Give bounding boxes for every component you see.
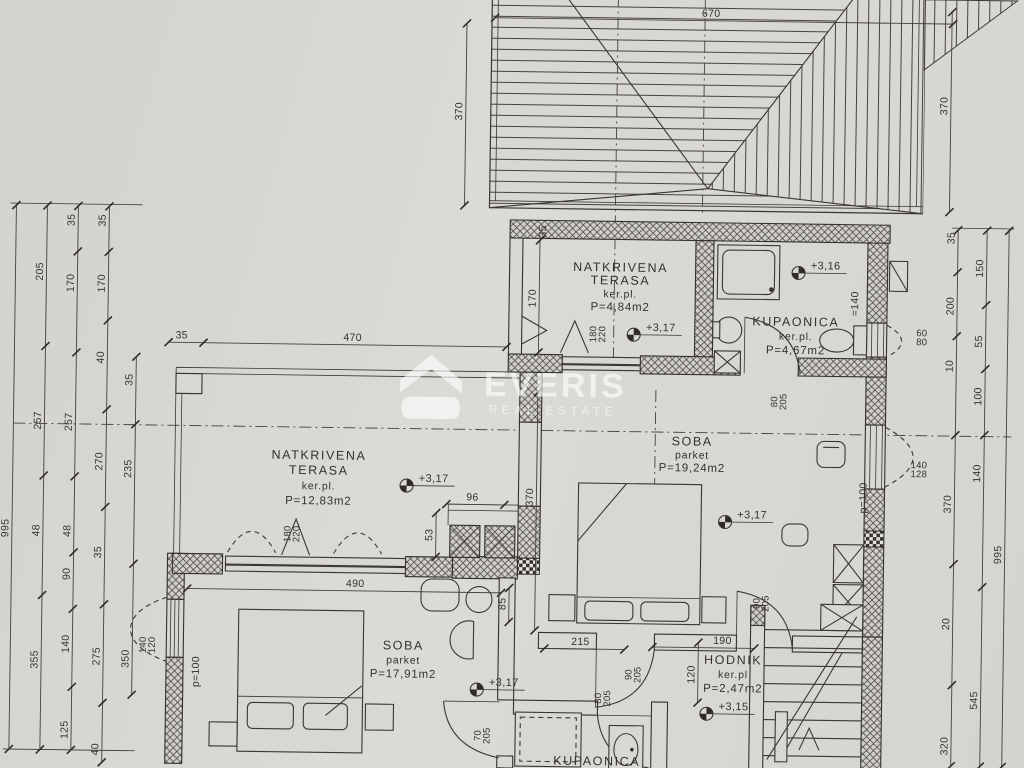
elevation-quadrant-icon: [792, 273, 799, 280]
window-swing-dashed-2: [334, 533, 382, 555]
dim-label: 85: [496, 598, 508, 610]
dim-label: 235: [122, 459, 134, 478]
opening-label: 140120: [138, 637, 158, 654]
dim-label: 150: [974, 259, 986, 278]
elevation-mark: +3,15: [700, 701, 755, 721]
dim-label: 995: [0, 519, 12, 538]
dim-label: 140: [971, 464, 983, 483]
nightstand-2: [702, 597, 726, 623]
window-swing-dashed-60x80: [886, 325, 901, 357]
dim-label: 170: [65, 274, 77, 293]
wall-terasa-small-left: [508, 238, 523, 356]
dim-label: 205: [34, 262, 46, 281]
room-label-terasa-small: P=4,84m2: [590, 301, 649, 314]
armchair: [421, 579, 459, 612]
dim-label: 40: [95, 351, 107, 363]
opening-label: 180220: [588, 326, 608, 343]
opening-label-line: 205: [602, 690, 613, 707]
dim-label: 257: [63, 413, 75, 432]
room-label-terasa-large: NATKRIVENA: [271, 448, 366, 463]
dim-label: 20: [940, 618, 952, 630]
door-swing-triangle-2: [522, 316, 547, 344]
elevation-mark: +3,17: [719, 509, 774, 529]
dim-chain: [9, 205, 17, 749]
dim-label: 35: [66, 214, 78, 226]
axis-horizontal: [13, 423, 1011, 437]
elevation-value: +3,17: [737, 509, 767, 521]
opening-label-line: 80: [916, 337, 927, 348]
opening-label: 140128: [910, 460, 927, 480]
elevation-mark: +3,17: [400, 472, 455, 492]
stool: [782, 524, 808, 546]
nightstand-3: [209, 722, 237, 746]
dim-label: 35: [945, 232, 957, 244]
floor-plan-svg: 9952052574835535170257489014012535170402…: [0, 0, 1024, 768]
elevation-leader: [407, 486, 455, 487]
room-label-kupaonica-upper: ker.pl.: [779, 331, 813, 343]
elevation-quadrant-icon: [477, 683, 484, 690]
elevation-mark: +3,17: [627, 322, 682, 342]
room-label-terasa-small: ker.pl.: [603, 288, 637, 300]
dim-label: 215: [571, 636, 590, 648]
dim-label: 48: [30, 524, 42, 536]
room-label-soba-small: P=17,91m2: [370, 668, 437, 681]
wall-right-a: [865, 377, 886, 425]
opening-label-line: 128: [910, 469, 927, 480]
basin-d-shape: [450, 621, 474, 659]
watermark-brand: EVERIS: [484, 366, 627, 406]
opening-label-line: 220: [291, 526, 302, 543]
note-label: =140: [849, 291, 861, 316]
room-label-soba-small: SOBA: [383, 638, 424, 653]
dim-label: 370: [524, 488, 536, 507]
room-label-kupaonica-lower: KUPAONICA: [553, 754, 640, 768]
dim-label: 270: [93, 452, 105, 471]
dim-label: 48: [61, 525, 73, 537]
door-sill-terasa-small: [562, 357, 640, 365]
room-label-soba-small: parket: [386, 654, 420, 666]
stairs: [763, 604, 863, 763]
wall-soba-large-left-c: [518, 506, 541, 558]
elevation-value: +3,15: [719, 701, 749, 713]
elevation-quadrant-icon: [700, 714, 707, 721]
elevation-quadrant-icon: [407, 479, 414, 486]
wall-left-b: [165, 657, 183, 763]
watermark-house-icon: [400, 354, 463, 393]
opening-label-line: 205: [778, 393, 789, 410]
dim-label: 120: [685, 665, 697, 684]
note-label: p=100: [190, 656, 202, 687]
opening-label-line: 120: [147, 637, 158, 654]
door-leaf-bath-lower: [597, 715, 651, 716]
opening-label: 180220: [282, 526, 302, 543]
opening-label: 80205: [769, 393, 789, 410]
dim-label: 35: [123, 373, 135, 385]
nightstand-4: [365, 704, 393, 730]
opening-label: 6080: [916, 328, 927, 348]
wall-corridor-top-c: [792, 636, 862, 653]
dim-label: 35: [97, 214, 109, 226]
pier-checker-1: [517, 558, 539, 574]
wall-terrace-bottom-b: [405, 557, 452, 578]
opening-label: 90205: [623, 666, 643, 683]
room-label-terasa-small: TERASA: [591, 273, 651, 288]
elevation-leader: [706, 714, 754, 715]
wall-terrace-bottom-a: [172, 553, 222, 574]
room-label-kupaonica-upper: KUPAONICA: [752, 314, 839, 329]
elevation-value: +3,17: [646, 322, 676, 334]
dim-label: 140: [60, 635, 72, 654]
dim-label: 170: [527, 289, 539, 308]
opening-label-line: 205: [481, 727, 492, 744]
dim-label: 125: [59, 720, 71, 739]
sheet: 9952052574835535170257489014012535170402…: [0, 0, 1017, 768]
pier-checker-2: [864, 531, 884, 547]
dim-label: 55: [973, 335, 985, 347]
dim-chain: [980, 231, 987, 767]
dim-label: 275: [91, 647, 103, 666]
elevation-leader: [725, 522, 773, 523]
dim-label: 545: [968, 691, 980, 710]
wall-terrace-bottom-c: [452, 556, 517, 579]
wall-upper-bottom-c: [798, 358, 886, 377]
room-label-hodnik: P=2,47m2: [703, 683, 762, 696]
window-swing-dashed-1: [228, 531, 276, 553]
dim-label: 490: [346, 578, 365, 590]
floor-plan-scan: 9952052574835535170257489014012535170402…: [0, 0, 1024, 768]
wall-bath-hodnik-divider: [651, 702, 668, 768]
elevation-value: +3,17: [489, 677, 519, 689]
elevation-quadrant-icon: [719, 522, 726, 529]
dim-label: 10: [944, 360, 956, 372]
dim-label: 40: [89, 743, 101, 755]
wall-right-c: [863, 547, 884, 637]
room-label-hodnik: ker.pl: [718, 669, 748, 681]
door-leaf-bath-upper: [744, 317, 745, 373]
room-label-hodnik: HODNIK: [704, 653, 762, 668]
note-label: 35: [537, 225, 549, 237]
elevation-quadrant-icon: [470, 689, 477, 696]
opening-label-line: 205: [632, 666, 643, 683]
wall-upper-top: [510, 220, 890, 243]
dim-chain: [132, 357, 137, 695]
dim-label: 355: [28, 650, 40, 669]
terrace-corner-step: [176, 373, 202, 393]
dim-chain: [544, 648, 624, 649]
dim-label: 670: [702, 8, 721, 20]
window-swing-dashed-140x128: [885, 427, 914, 487]
door-leaf-soba-small: [444, 701, 500, 702]
dim-chain: [436, 513, 437, 557]
elevation-quadrant-icon: [627, 335, 634, 342]
elevation-quadrant-icon: [725, 515, 732, 522]
elevation-quadrant-icon: [706, 707, 713, 714]
note-label: p=100: [857, 482, 869, 513]
dim-chain: [446, 504, 504, 505]
roof-ne-wing: [924, 0, 1017, 71]
dim-label: 470: [343, 332, 362, 344]
dim-label: 53: [423, 529, 435, 541]
dim-label: 96: [466, 491, 478, 503]
radiator: [817, 441, 845, 467]
dim-label: 995: [992, 546, 1004, 565]
terrace-alcove-wall: [448, 504, 518, 526]
dim-label: 370: [453, 102, 465, 121]
room-label-soba-large: SOBA: [672, 434, 713, 449]
elevation-value: +3,17: [419, 473, 449, 485]
opening-label: 70205: [472, 727, 492, 744]
dim-chain: [698, 643, 699, 703]
room-label-terasa-large: P=12,83m2: [285, 495, 352, 508]
dim-label: 370: [938, 97, 950, 116]
basin-round: [466, 586, 492, 612]
dim-label: 100: [972, 387, 984, 406]
dim-label: 257: [32, 411, 44, 430]
wall-soba-small-right-b: [497, 756, 513, 768]
watermark-house-base: [402, 396, 460, 419]
elevation-leader: [799, 273, 847, 274]
opening-label-line: 220: [597, 326, 608, 343]
dim-label: 35: [92, 546, 104, 558]
dim-label: 200: [945, 297, 957, 316]
door-swing-triangle-1: [560, 321, 588, 353]
elevation-quadrant-icon: [634, 328, 641, 335]
wall-bath-right-upper: [867, 243, 888, 323]
nightstand-1: [549, 595, 575, 621]
dim-label: 90: [61, 568, 73, 580]
stair-direction-arrow: [799, 728, 819, 750]
room-label-terasa-large: ker.pl.: [302, 480, 336, 492]
watermark-tagline: REAL ESTATE: [489, 403, 618, 419]
dim-label: 35: [175, 329, 187, 341]
elevation-leader: [477, 690, 525, 691]
elevation-mark: +3,16: [792, 260, 847, 280]
toilet-upper-tank: [853, 326, 866, 355]
dim-chain: [187, 588, 501, 592]
room-label-soba-large: parket: [675, 449, 709, 461]
room-label-kupaonica-upper: P=4,67m2: [766, 345, 825, 358]
bed-small: [237, 609, 364, 753]
room-label-terasa-large: TERASA: [289, 463, 349, 478]
dim-chain: [169, 342, 507, 347]
dim-label: 320: [938, 737, 950, 756]
room-label-soba-large: P=19,24m2: [659, 462, 726, 475]
dim-chain: [1002, 231, 1009, 767]
bed-large: [577, 483, 702, 625]
elevation-leader: [634, 335, 682, 336]
dim-label: 370: [942, 495, 954, 514]
sink-upper-mount: [713, 322, 720, 338]
wall-right-d: [861, 637, 883, 768]
elevation-value: +3,16: [811, 260, 841, 272]
dim-label: 350: [119, 649, 131, 668]
opening-label: 90205: [751, 595, 771, 612]
elevation-quadrant-icon: [799, 266, 806, 273]
dim-label: 190: [713, 635, 732, 647]
opening-label-line: 205: [760, 595, 771, 612]
elevation-quadrant-icon: [400, 485, 407, 492]
wall-terasa-bath-divider: [694, 241, 714, 359]
dim-label: 170: [96, 274, 108, 293]
